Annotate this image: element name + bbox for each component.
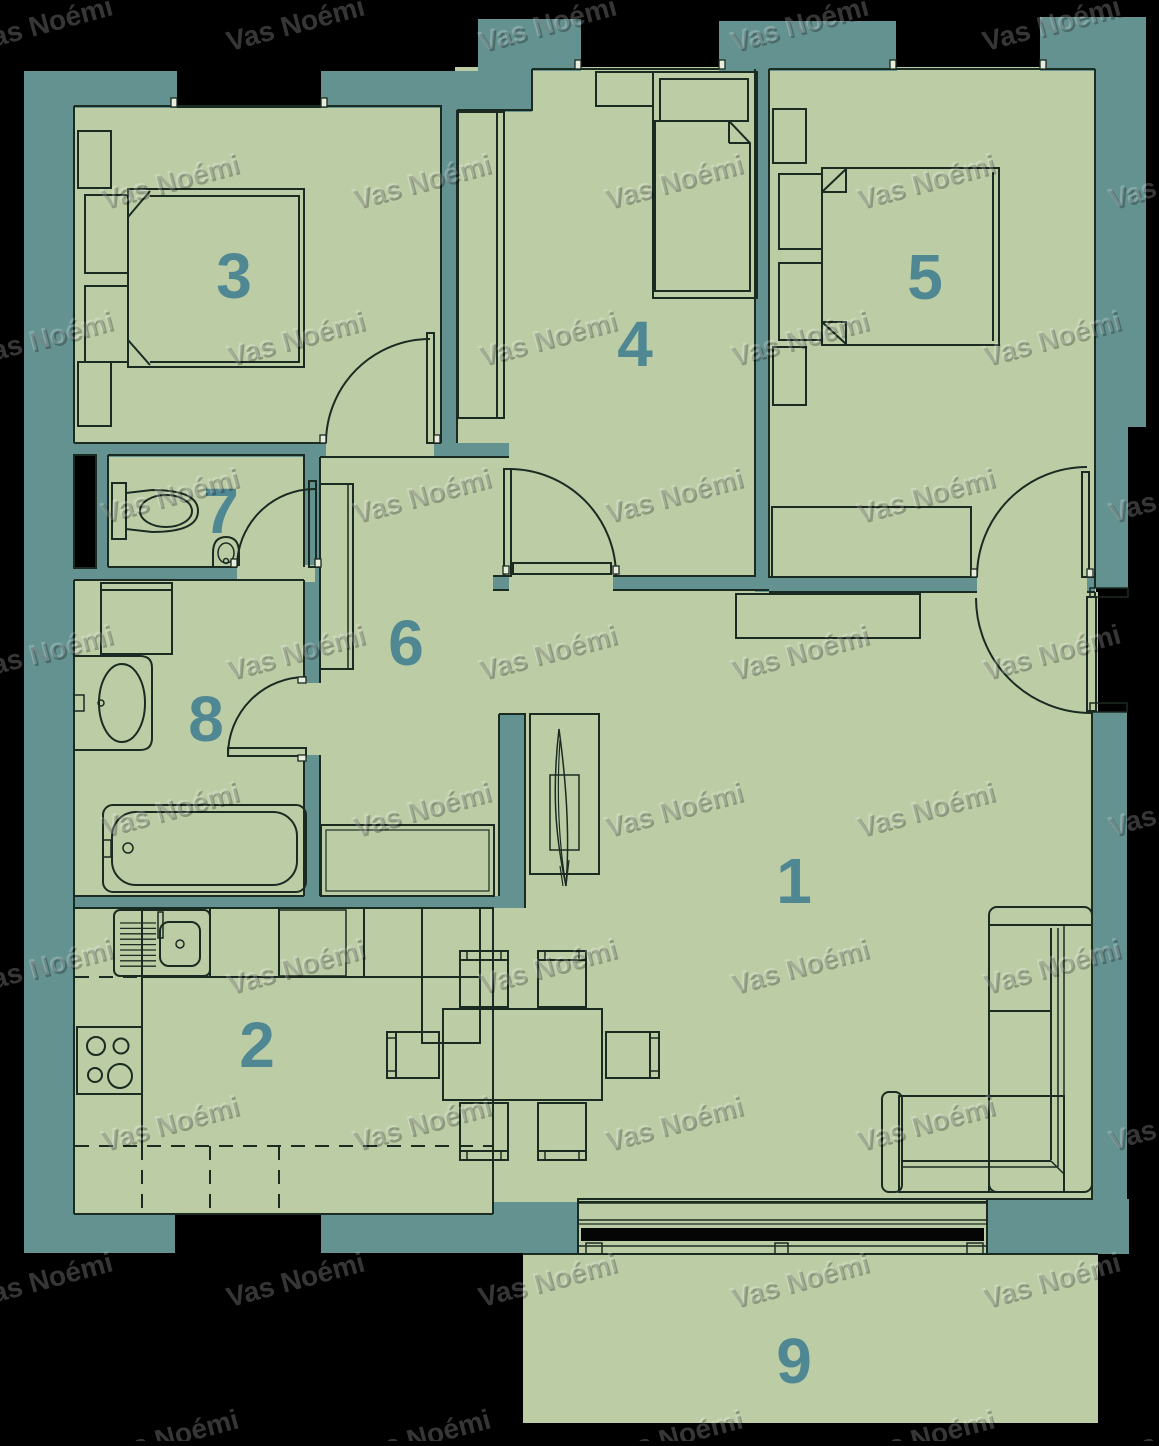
svg-text:9: 9 — [776, 1325, 812, 1397]
svg-text:3: 3 — [216, 240, 252, 312]
svg-text:2: 2 — [239, 1009, 275, 1081]
svg-text:1: 1 — [776, 845, 812, 917]
svg-text:4: 4 — [617, 308, 653, 380]
svg-text:8: 8 — [188, 683, 224, 755]
svg-text:5: 5 — [907, 241, 943, 313]
svg-text:6: 6 — [388, 607, 424, 679]
